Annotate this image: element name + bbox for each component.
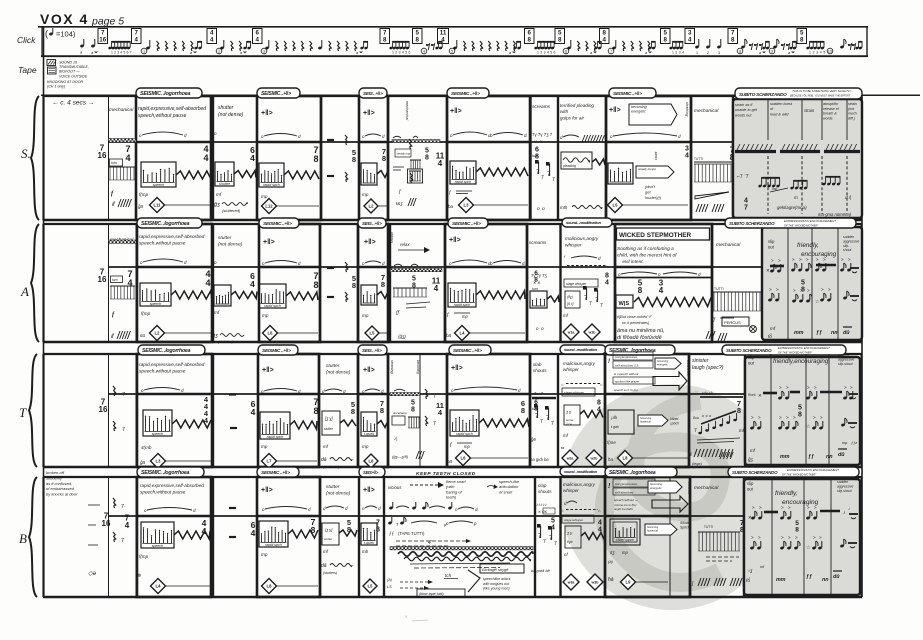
svg-text:(not dense): (not dense) (218, 112, 244, 118)
svg-text:3: 3 (263, 50, 265, 54)
svg-text:EXPRESSIONISTIC ENCOURAGEMENT: EXPRESSIONISTIC ENCOURAGEMENT (787, 468, 839, 472)
svg-text:dā: dā (321, 457, 327, 463)
svg-text:L3: L3 (464, 203, 470, 208)
svg-text:L11: L11 (154, 203, 162, 208)
svg-text:energetic: energetic (631, 110, 646, 114)
svg-text:6: 6 (256, 30, 260, 37)
svg-text:(don't: (don't (645, 184, 656, 189)
svg-text:sudden burst: sudden burst (770, 102, 793, 106)
svg-text:16: 16 (98, 151, 107, 160)
svg-text:SEISMIC‥+‖>: SEISMIC‥+‖> (261, 470, 290, 476)
svg-text:(like young men): (like young men) (483, 587, 510, 591)
svg-text:5: 5 (123, 51, 125, 55)
svg-text:rapid,expressive,self-absorbed: rapid,expressive,self-absorbed (140, 483, 204, 488)
svg-text:straining: straining (685, 102, 689, 117)
svg-text:bā: bā (446, 333, 452, 338)
svg-text:SEISMIC‥+‖>: SEISMIC‥+‖> (453, 348, 482, 354)
svg-text:slip: slip (747, 481, 754, 486)
svg-text:8: 8 (381, 280, 385, 289)
svg-text:4: 4 (688, 37, 692, 44)
svg-text:L5: L5 (613, 203, 619, 208)
svg-text:t-quek: t-quek (364, 432, 374, 436)
svg-text:8: 8 (352, 281, 356, 290)
svg-text:& ♪speech without: & ♪speech without (614, 372, 639, 376)
svg-text:+‖>: +‖> (450, 108, 462, 115)
svg-text:>: > (758, 415, 761, 420)
svg-text:6: 6 (409, 51, 411, 55)
svg-text:+‖>: +‖> (363, 487, 375, 494)
svg-text:>: > (751, 415, 754, 420)
svg-text:abrupt/for: abrupt/for (823, 102, 839, 106)
svg-text:evil intent.: evil intent. (617, 259, 644, 265)
svg-text:release of: release of (823, 107, 840, 111)
svg-text:ćābel gąsm: ćābel gąsm (616, 538, 634, 542)
svg-text:8: 8 (739, 50, 741, 54)
svg-text:f(mp: f(mp (139, 554, 149, 559)
svg-text:speech: speech (152, 432, 164, 436)
svg-text:3: 3 (679, 51, 681, 55)
svg-text:turn: turn (112, 278, 118, 282)
svg-text:whisper: whisper (565, 243, 582, 249)
svg-text:4: 4 (423, 50, 425, 54)
svg-text:dā: dā (321, 563, 327, 569)
svg-text:speech: speech (153, 183, 165, 187)
svg-text:sudden: sudden (837, 480, 848, 484)
svg-text:16: 16 (99, 405, 108, 414)
svg-text:SEISMIC‥logorrhoea: SEISMIC‥logorrhoea (141, 221, 190, 227)
svg-text:7: 7 (135, 30, 139, 37)
svg-text:laugh (spec?): laugh (spec?) (692, 365, 724, 371)
svg-text:+‖>: +‖> (363, 110, 375, 117)
svg-text:crce: crce (566, 422, 572, 426)
svg-text:7: 7 (551, 421, 554, 427)
svg-text:mechanical: mechanical (405, 101, 409, 120)
svg-text:SUBITO SCHERZANDO: SUBITO SCHERZANDO (732, 470, 778, 475)
svg-text:broken-off: broken-off (46, 470, 65, 475)
svg-text:8: 8 (800, 37, 804, 44)
svg-text:8: 8 (528, 37, 532, 44)
svg-text:16: 16 (99, 37, 106, 44)
svg-text:A: A (20, 284, 29, 299)
svg-text:7: 7 (101, 30, 105, 37)
svg-text:SEISMIC‥logorrhoea: SEISMIC‥logorrhoea (140, 91, 191, 97)
svg-text:vicious: vicious (388, 485, 402, 490)
svg-text:ĝē: ĝē (531, 437, 536, 442)
svg-text:spoken like prayer: spoken like prayer (615, 380, 640, 384)
svg-text:āma nu minēma nū,: āma nu minēma nū, (617, 328, 665, 334)
svg-text:dū: dū (833, 574, 840, 580)
svg-text:>: > (819, 535, 822, 540)
svg-text:4: 4 (820, 51, 822, 55)
svg-text:stage whisper: stage whisper (564, 518, 584, 522)
svg-text:4: 4 (125, 521, 130, 530)
svg-text:stutter: stutter (326, 363, 340, 369)
svg-text:7: 7 (130, 51, 132, 55)
svg-text:(very)expressive,: (very)expressive, (615, 355, 638, 359)
svg-text:VOX 4: VOX 4 (40, 11, 89, 27)
svg-text:>: > (759, 505, 762, 510)
svg-text:becoming: becoming (631, 105, 647, 109)
svg-text:7·: 7· (121, 504, 126, 510)
svg-text:4: 4 (250, 279, 255, 289)
svg-text:2: 2 (813, 51, 815, 55)
svg-text:1: 1 (111, 51, 113, 55)
svg-text:f(mp: f(mp (141, 311, 151, 316)
svg-text:Ekritagē! strygē: Ekritagē! strygē (482, 568, 508, 572)
svg-text:self-absorbed: self-absorbed (615, 491, 634, 495)
svg-text:mp: mp (622, 550, 628, 555)
svg-text:♯{But close-mikēd “f”: ♯{But close-mikēd “f” (617, 315, 653, 319)
svg-text:(not dense): (not dense) (326, 490, 351, 496)
svg-text:mp: mp (261, 444, 268, 449)
svg-text:(TAPE TUTTI): (TAPE TUTTI) (398, 531, 425, 536)
svg-text:4: 4 (251, 528, 256, 538)
svg-text:slip: slip (748, 355, 755, 360)
svg-text:nn: nn (826, 454, 833, 460)
svg-text:with tongues out: with tongues out (483, 582, 510, 586)
svg-text:(lega): (lega) (692, 462, 702, 466)
svg-text:KEEP TEETH CLOSED: KEEP TEETH CLOSED (416, 471, 476, 477)
svg-text:>: > (781, 505, 784, 510)
svg-text:BIGFOOT —: BIGFOOT — (59, 70, 80, 74)
svg-text:(not dense): (not dense) (326, 369, 351, 375)
svg-text:d.: d. (522, 261, 526, 266)
svg-text:6: 6 (127, 51, 129, 55)
svg-text:Spōch: Spōch (680, 526, 690, 530)
svg-text:rapid spch: rapid spch (455, 180, 472, 184)
svg-text:!: ! (608, 359, 610, 365)
svg-text:slip-: slip- (843, 244, 850, 248)
svg-text:strain: strain (848, 102, 857, 106)
svg-text:SEIS+‖>: SEIS+‖> (363, 470, 379, 475)
svg-text:mf: mf (770, 326, 776, 331)
svg-text:>: > (793, 288, 796, 293)
svg-text:TUTTI: TUTTI (694, 157, 703, 161)
svg-text:mth: mth (560, 205, 568, 210)
svg-text:7: 7 (731, 30, 735, 37)
svg-text:Soothing as if comforting a: Soothing as if comforting a (617, 246, 674, 252)
svg-text:(CH 1 only): (CH 1 only) (47, 85, 65, 89)
svg-text:16: 16 (98, 275, 107, 284)
svg-text:+‖>: +‖> (364, 239, 376, 246)
svg-text:shout: shout (843, 248, 852, 252)
svg-text:+‖>: +‖> (363, 367, 375, 374)
svg-text:Click: Click (17, 35, 36, 45)
svg-text:ĝʒ: ĝʒ (212, 333, 218, 339)
svg-text:4: 4 (682, 51, 684, 55)
svg-text:rapid spch: rapid spch (264, 304, 281, 308)
svg-text:terrified pleading: terrified pleading (560, 103, 594, 108)
svg-text:L6: L6 (461, 456, 467, 461)
svg-text:4: 4 (402, 51, 404, 55)
svg-text:d.: d. (475, 507, 479, 512)
svg-text:>: > (752, 505, 755, 510)
svg-text:(not: (not (848, 107, 855, 111)
svg-text:nn: nn (831, 330, 838, 336)
svg-text:>: > (758, 535, 761, 540)
svg-text:1: 1 (696, 51, 698, 55)
svg-text:ʒ ɣ: ʒ ɣ (566, 530, 573, 535)
svg-text:friendly,encouraging: friendly,encouraging (773, 358, 829, 365)
svg-text:SEISMIC‥+‖>: SEISMIC‥+‖> (452, 221, 481, 227)
svg-text:d.: d. (524, 133, 528, 138)
svg-text:7: 7 (543, 539, 546, 545)
svg-text:tch: tch (445, 573, 452, 578)
svg-text:mechanical: mechanical (694, 108, 719, 114)
svg-text:fō̃: fō̃ (768, 333, 772, 339)
svg-text:‖: ‖ (690, 452, 692, 457)
svg-text:KNOCKING AT DOOR: KNOCKING AT DOOR (47, 80, 84, 84)
svg-text:9: 9 (771, 50, 773, 54)
svg-text:5: 5 (416, 30, 420, 37)
svg-text:w3b: w3b (591, 581, 600, 585)
svg-text:(very)expressive,: (very)expressive, (615, 482, 638, 486)
svg-text:L4: L4 (156, 584, 162, 589)
svg-text:>: > (786, 385, 789, 390)
svg-text:teeth): teeth) (446, 495, 457, 500)
svg-text:screams: screams (529, 240, 547, 245)
svg-text:f(mp: f(mp (139, 192, 149, 197)
svg-text:almost nā/tō: almost nā/tō (614, 392, 630, 396)
svg-text:>: > (816, 257, 819, 262)
svg-text:spōch: spōch (670, 422, 679, 426)
svg-text:ƒƒ: ƒƒ (806, 574, 812, 580)
svg-text:fō̃: fō̃ (746, 577, 751, 584)
svg-text:ℓ̸ē: ℓ̸ē (136, 573, 142, 579)
svg-text:L2: L2 (155, 331, 161, 336)
svg-text:w3a: w3a (567, 581, 576, 585)
svg-text:♪: ♪ (848, 506, 850, 511)
svg-text:SEIS‥+‖>: SEIS‥+‖> (362, 221, 382, 226)
svg-text:friendly,: friendly, (797, 242, 819, 249)
svg-text:vicious: vicious (390, 232, 394, 243)
svg-text:1: 1 (672, 51, 674, 55)
svg-text:>: > (778, 258, 781, 263)
svg-text:L12: L12 (265, 204, 273, 209)
svg-text:m: m (794, 195, 798, 200)
svg-text:3: 3 (117, 51, 119, 55)
svg-text:7·: 7· (122, 392, 127, 398)
svg-text:4: 4 (438, 159, 443, 168)
svg-text:rapid spch: rapid spch (456, 432, 473, 436)
svg-text:[ʒ ɣ]: [ʒ ɣ] (324, 527, 333, 532)
svg-text:SEIS‥+‖>: SEIS‥+‖> (362, 348, 382, 353)
svg-text:L9: L9 (626, 580, 632, 585)
svg-text:3: 3 (544, 51, 546, 55)
svg-text:5: 5 (800, 30, 804, 37)
svg-text:SEISMIC‥logorrhoea: SEISMIC‥logorrhoea (141, 470, 190, 476)
svg-text:4: 4 (251, 407, 256, 417)
svg-text:mm: mm (776, 577, 786, 583)
svg-text:sudden: sudden (838, 353, 849, 357)
svg-text:2: 2 (707, 51, 709, 55)
svg-text:L8: L8 (267, 584, 273, 589)
svg-text:gektiagre(mna): gektiagre(mna) (777, 205, 807, 210)
svg-text:mf: mf (323, 444, 329, 449)
svg-text:8: 8 (352, 155, 356, 164)
svg-text:ĝā: ĝā (138, 204, 144, 209)
svg-text:7γ 7γ 7ʒ 7: 7γ 7γ 7ʒ 7 (532, 132, 553, 137)
svg-text:✕: ✕ (758, 393, 762, 398)
svg-text:mp: mp (842, 441, 847, 445)
svg-text:>: > (807, 385, 810, 390)
svg-text:3: 3 (816, 51, 818, 55)
svg-text:dū: dū (843, 330, 850, 336)
svg-text:4: 4 (685, 152, 689, 159)
svg-text:turn: turn (532, 287, 538, 291)
svg-text:2: 2 (114, 51, 116, 55)
svg-text:Rock: Rock (748, 393, 756, 397)
svg-text:clap: clap (538, 483, 547, 488)
svg-text:sound‥modification: sound‥modification (564, 348, 598, 352)
svg-text:speechlike antics: speechlike antics (483, 577, 511, 581)
svg-text:♪|: ♪| (394, 436, 397, 441)
svg-text:kāntd: kāntd (670, 417, 678, 421)
svg-text:rapid spch: rapid spch (267, 435, 284, 439)
svg-text:Tape: Tape (18, 65, 37, 75)
svg-text:SEIS‥+‖>: SEIS‥+‖> (363, 91, 383, 96)
svg-text:mf: mf (750, 448, 756, 453)
svg-text:← c. 4 secs →: ← c. 4 secs → (52, 100, 94, 107)
svg-text:3: 3 (688, 30, 692, 37)
svg-text:steady tempo: steady tempo (638, 167, 656, 171)
svg-text:aggressive: aggressive (843, 239, 860, 243)
svg-text:4: 4 (125, 153, 130, 163)
svg-text:>: > (813, 415, 816, 420)
svg-text:rapid spch: rapid spch (263, 183, 280, 187)
svg-text:stutter: stutter (324, 537, 333, 541)
svg-text:much: much (848, 112, 857, 116)
svg-text:8: 8 (740, 525, 744, 534)
svg-text:>: > (769, 287, 772, 292)
svg-text:>: > (814, 385, 817, 390)
svg-text:2: 2 (675, 51, 677, 55)
svg-text:aggressive: aggressive (837, 484, 854, 488)
svg-text:8: 8 (313, 280, 318, 290)
svg-text:diff.): diff.) (848, 116, 855, 120)
svg-text:OF THE “WICKED MOTHER”: OF THE “WICKED MOTHER” (778, 351, 812, 355)
svg-text:(A): (A) (387, 578, 393, 582)
svg-text:breath &: breath & (823, 112, 837, 116)
svg-text:hysterical: hysterical (640, 420, 651, 424)
svg-text:☆: ☆ (806, 424, 811, 430)
svg-text:8: 8 (795, 526, 799, 533)
svg-text:⌐7 ˈ7: ⌐7 ˈ7 (737, 174, 749, 180)
svg-text:mp: mp (362, 313, 369, 318)
svg-text:screams: screams (532, 104, 551, 110)
svg-text:becoming: becoming (640, 416, 652, 420)
svg-text:(: ( (45, 29, 48, 39)
svg-text:ʒ ɣ: ʒ ɣ (565, 409, 572, 414)
svg-text:7: 7 (433, 394, 436, 400)
svg-text:7: 7 (694, 428, 697, 434)
svg-text:8: 8 (380, 406, 384, 415)
svg-text:becoming: becoming (657, 359, 669, 363)
svg-text:7: 7 (541, 175, 544, 181)
svg-text:mechanical: mechanical (716, 242, 741, 248)
svg-text:speech: speech (150, 302, 162, 306)
svg-text:energetic: energetic (650, 486, 662, 490)
svg-text:6: 6 (554, 51, 556, 55)
svg-text:7: 7 (552, 177, 555, 183)
svg-text:8: 8 (737, 406, 741, 415)
svg-text:strain as if: strain as if (735, 103, 753, 107)
svg-text:malicious,angry: malicious,angry (563, 361, 596, 366)
svg-text:steady tmp: steady tmp (397, 152, 411, 156)
svg-text:s-o-u-n-d-s: s-o-u-n-d-s (686, 360, 690, 376)
svg-text:8: 8 (416, 37, 420, 44)
svg-text:5: 5 (823, 51, 825, 55)
svg-text:OF THE “WICKED MOTHER”: OF THE “WICKED MOTHER” (784, 224, 818, 228)
svg-text:L5: L5 (370, 331, 376, 336)
svg-text:mm: mm (780, 454, 790, 460)
svg-text:slip-shout: slip-shout (837, 489, 853, 493)
svg-text:rapid spch: rapid spch (454, 303, 471, 307)
svg-text:ba gıdı ba: ba gıdı ba (530, 457, 549, 462)
svg-text:(stutters): (stutters) (218, 340, 234, 344)
svg-text:8: 8 (383, 37, 387, 44)
svg-text:>: > (786, 415, 789, 420)
svg-text:8: 8 (638, 286, 643, 295)
svg-text:mm: mm (794, 330, 804, 336)
svg-text:4: 4 (605, 279, 609, 286)
svg-text:slab: slab (533, 362, 542, 367)
svg-text:>: > (792, 257, 795, 262)
svg-text:shouts: shouts (533, 368, 547, 373)
svg-text:4: 4 (250, 153, 255, 163)
svg-text:of embarrassed: of embarrassed (46, 486, 75, 491)
svg-text:L7: L7 (267, 459, 273, 464)
svg-text:speech,without pause: speech,without pause (140, 489, 186, 494)
svg-text:w2a: w2a (566, 457, 575, 461)
svg-text:L5: L5 (368, 584, 374, 589)
svg-text:>: > (841, 257, 844, 262)
svg-text:as if confused,: as if confused, (46, 481, 72, 486)
svg-text:EXPRESSIONISTIC ENCOURAGEMENT: EXPRESSIONISTIC ENCOURAGEMENT (778, 346, 830, 350)
svg-text:SEISMIC‥+‖>: SEISMIC‥+‖> (613, 91, 642, 97)
svg-text:SUBITO SCHERZANDO: SUBITO SCHERZANDO (729, 221, 775, 226)
svg-text:SUBITO SCHERZANDO: SUBITO SCHERZANDO (739, 92, 787, 97)
svg-text:o o: o o (536, 326, 544, 331)
svg-text:whisper: whisper (563, 488, 579, 493)
svg-text:speech,without pause: speech,without pause (138, 113, 187, 119)
svg-text:ƒƒ: ƒƒ (816, 330, 822, 336)
svg-text:mp: mp (261, 194, 268, 199)
svg-text:shutter: shutter (218, 105, 234, 111)
svg-text:relax: relax (400, 242, 410, 247)
svg-text:4: 4 (203, 153, 208, 163)
svg-text:4: 4 (441, 37, 445, 44)
svg-text:PERCUS: PERCUS (724, 320, 741, 325)
svg-text:1: 1 (143, 50, 145, 54)
svg-text:4: 4 (603, 37, 607, 44)
svg-text:>: > (779, 385, 782, 390)
svg-text:>: > (844, 385, 847, 390)
svg-text:becoming: becoming (647, 525, 659, 529)
svg-text:OF THE “WICKED MOTHER”: OF THE “WICKED MOTHER” (782, 473, 816, 477)
svg-text:>: > (788, 505, 791, 510)
svg-text:11: 11 (440, 30, 447, 37)
svg-text:8: 8 (664, 37, 668, 44)
svg-text:8: 8 (798, 411, 802, 418)
svg-text:+‖>: +‖> (261, 487, 273, 494)
svg-text:gulps for air: gulps for air (560, 115, 584, 120)
svg-text:sinister: sinister (692, 358, 709, 364)
svg-text:ŧ galı: ŧ galı (611, 425, 619, 429)
svg-text:4: 4 (120, 51, 122, 55)
svg-text:rapid,expressive,self-absorbed: rapid,expressive,self-absorbed (139, 234, 205, 240)
svg-text:L2: L2 (369, 204, 375, 209)
